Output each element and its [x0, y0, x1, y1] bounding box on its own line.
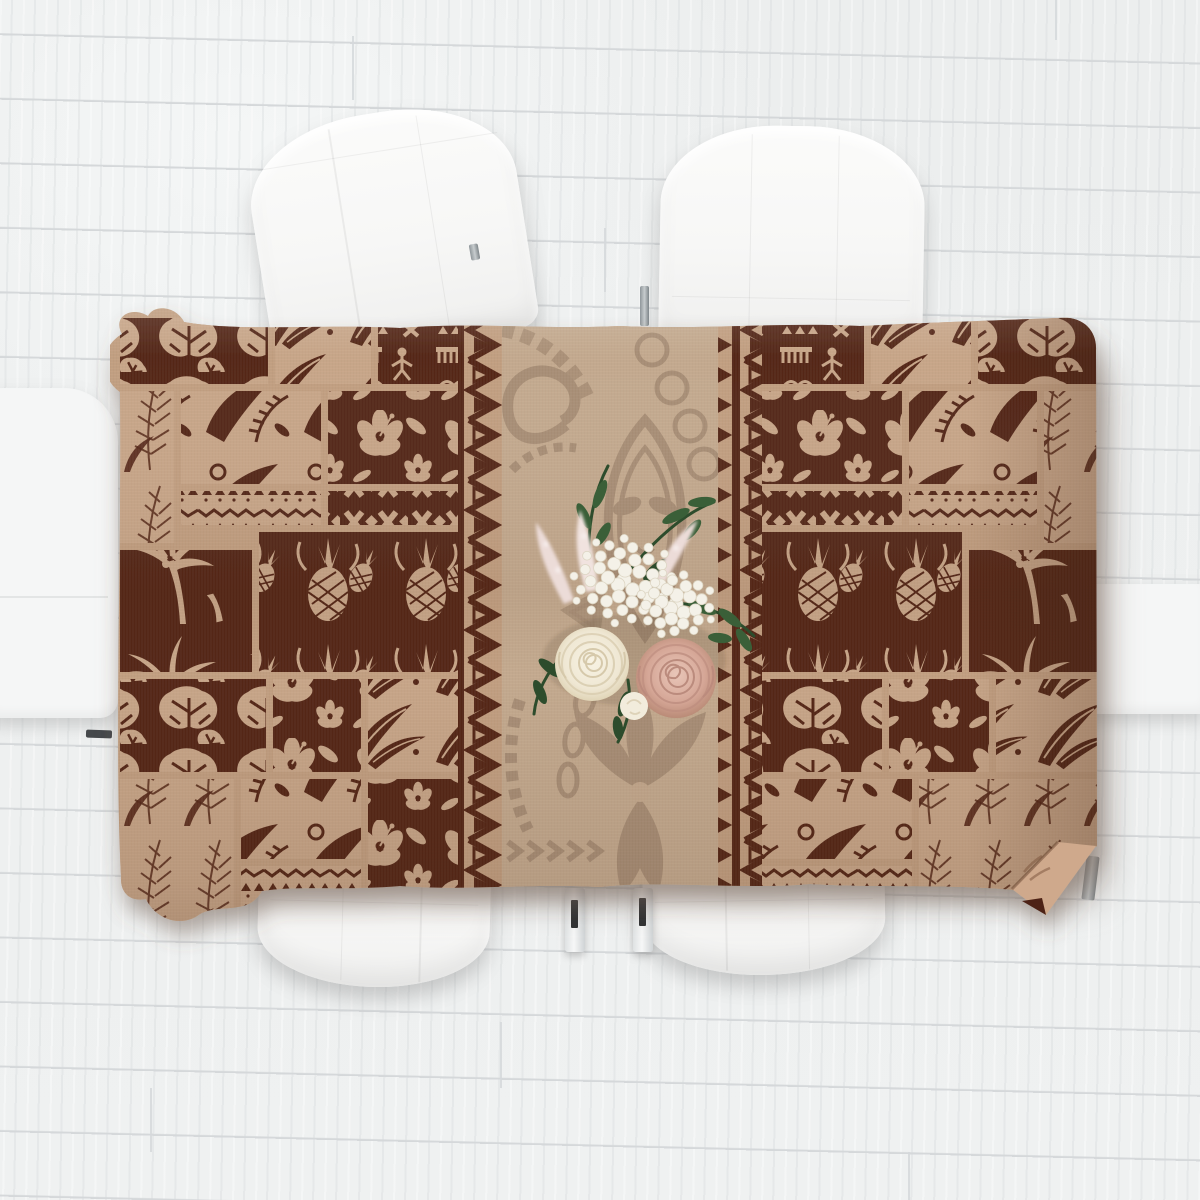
hydrangea-floret	[603, 608, 613, 618]
hydrangea-floret	[595, 551, 606, 562]
hydrangea-floret	[614, 548, 626, 560]
product-photo-tablecloth-scene: { "objects": { "floor": "whitewashed woo…	[0, 0, 1200, 1200]
hydrangea-floret	[650, 605, 662, 617]
hydrangea-floret	[643, 554, 654, 565]
tablecloth	[0, 0, 1200, 1200]
hydrangea-floret	[593, 539, 600, 546]
hydrangea-floret	[644, 616, 653, 625]
hydrangea-floret	[633, 565, 646, 578]
hydrangea-floret	[641, 600, 651, 610]
hydrangea-floret	[617, 605, 628, 616]
hydrangea-floret	[649, 588, 660, 599]
hydrangea-floret	[629, 554, 641, 566]
hydrangea-floret	[693, 581, 703, 591]
hydrangea-floret	[627, 614, 636, 623]
hydrangea-floret	[659, 569, 666, 576]
hydrangea-floret	[576, 585, 585, 594]
hydrangea-floret	[620, 534, 628, 542]
hydrangea-floret	[650, 578, 659, 587]
hydrangea-floret	[637, 591, 645, 599]
hydrangea-floret	[655, 618, 666, 629]
hydrangea-floret	[707, 616, 714, 623]
hydrangea-floret	[626, 596, 638, 608]
hydrangea-floret	[644, 543, 653, 552]
hydrangea-floret	[580, 565, 590, 575]
hydrangea-floret	[594, 562, 606, 574]
hydrangea-floret	[693, 615, 703, 625]
hydrangea-floret	[665, 612, 678, 625]
hydrangea-floret	[611, 619, 619, 627]
hydrangea-floret	[627, 542, 637, 552]
hydrangea-floret	[612, 590, 625, 603]
hydrangea-floret	[570, 572, 578, 580]
hydrangea-floret	[696, 594, 707, 605]
hydrangea-floret	[705, 603, 714, 612]
hydrangea-floret	[670, 626, 680, 636]
hydrangea-floret	[585, 576, 596, 587]
rose-cream	[555, 627, 629, 701]
hydrangea-floret	[706, 587, 714, 595]
hydrangea-floret	[677, 606, 690, 619]
rosebud-white	[620, 692, 648, 720]
hydrangea-floret	[601, 595, 613, 607]
hydrangea-floret	[661, 550, 669, 558]
hydrangea-floret	[605, 541, 615, 551]
hydrangea-floret	[587, 593, 598, 604]
hydrangea-floret	[583, 551, 592, 560]
hydrangea-floret	[595, 582, 608, 595]
hydrangea-floret	[658, 630, 666, 638]
hydrangea-floret	[587, 606, 595, 614]
hydrangea-floret	[689, 604, 701, 616]
hydrangea-floret	[657, 560, 667, 570]
hydrangea-floret	[690, 626, 698, 634]
hydrangea-floret	[679, 571, 688, 580]
hydrangea-floret	[680, 580, 692, 592]
hydrangea-floret	[678, 618, 689, 629]
hydrangea-floret	[667, 575, 678, 586]
hydrangea-floret	[573, 597, 580, 604]
